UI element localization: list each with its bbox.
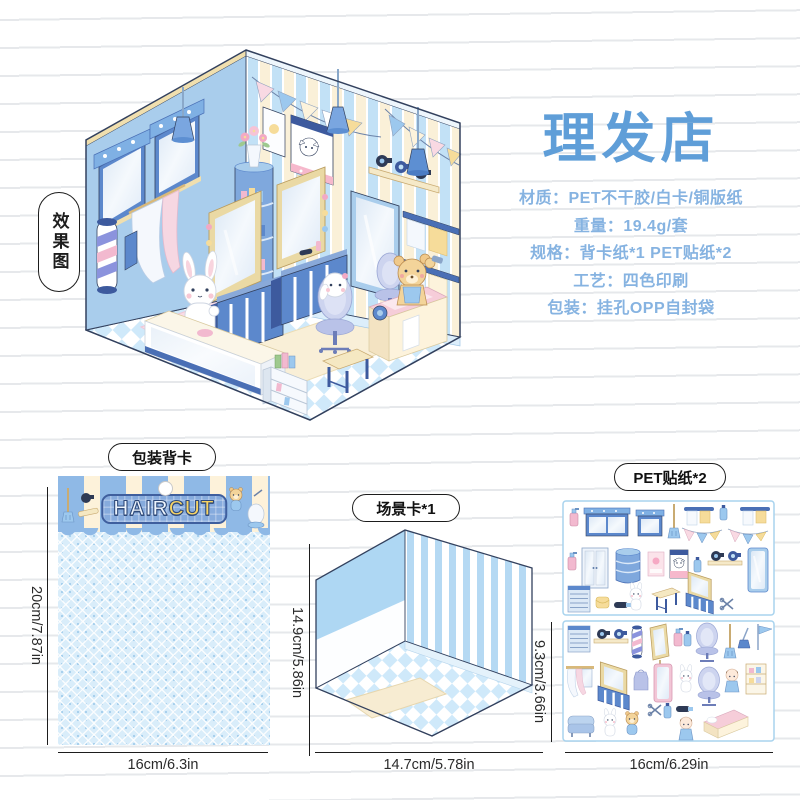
broom-tools-doodle (60, 486, 100, 528)
back-card-height-dim: 20cm/7.87in (28, 545, 44, 705)
back-card-pattern-body (58, 532, 270, 745)
back-card-header: HAIRCUT (58, 476, 270, 532)
scene-card-width-dim: 14.7cm/5.78in (359, 757, 499, 773)
effect-view-label: 效果图 (38, 192, 80, 292)
spec-material: 材质：PET不干胶/白卡/铜版纸 (498, 185, 764, 213)
sticker-apron (634, 670, 648, 690)
packaging-back-card: HAIRCUT (58, 476, 270, 745)
measure-line (551, 622, 552, 742)
spec-packaging: 包装：挂孔OPP自封袋 (498, 295, 764, 323)
scene-card-height-dim: 14.9cm/5.86in (289, 575, 305, 730)
sticker-glass-door (582, 548, 608, 588)
sticker-blinds-window (568, 586, 590, 612)
effect-view-label-text: 效果图 (47, 212, 72, 272)
measure-line (309, 544, 310, 756)
spec-contents: 规格：背卡纸*1 PET贴纸*2 (498, 240, 764, 268)
sticker-cabinet (746, 664, 766, 694)
salon-effect-illustration (85, 45, 505, 437)
bear-chair-doodle (226, 484, 268, 530)
product-specs: 材质：PET不干胶/白卡/铜版纸 重量：19.4g/套 规格：背卡纸*1 PET… (498, 185, 764, 323)
poster-icon (263, 107, 285, 157)
barber-pole-icon (97, 218, 117, 294)
sticker-pink-poster (648, 552, 664, 576)
sticker-small-window (636, 510, 664, 536)
spec-printing: 工艺：四色印刷 (498, 268, 764, 296)
product-detail-page: 效果图 理发店 材质：PET不干胶/白卡/铜版纸 重量：19.4g/套 规格：背… (0, 0, 800, 800)
scene-card-label: 场景卡*1 (352, 494, 460, 522)
sticker-bear-figure (626, 712, 639, 735)
product-info: 理发店 材质：PET不干胶/白卡/铜版纸 重量：19.4g/套 规格：背卡纸*1… (498, 110, 764, 323)
sticker-sheet-2 (562, 620, 775, 742)
sticker-sheets-label: PET贴纸*2 (614, 463, 726, 491)
sticker-barber-pole (632, 626, 642, 659)
measure-line (47, 487, 48, 745)
back-card-width-dim: 16cm/6.3in (93, 757, 233, 773)
back-card-label: 包装背卡 (108, 443, 216, 471)
scallop-edge (58, 528, 270, 537)
sticker-cat-poster (670, 550, 688, 578)
sticker-corner-shelf (616, 549, 640, 584)
spec-weight: 重量：19.4g/套 (498, 213, 764, 241)
measure-line (315, 752, 543, 753)
measure-line (58, 752, 268, 753)
product-title: 理发店 (498, 110, 764, 169)
measure-line (565, 752, 773, 753)
sticker-width-dim: 16cm/6.29in (599, 757, 739, 773)
sticker-sheet-1 (562, 500, 775, 616)
door-icon (125, 231, 137, 270)
sticker-height-dim: 9.3cm/3.66in (531, 622, 547, 742)
scene-card (312, 528, 545, 762)
sticker-wide-window (584, 508, 630, 536)
haircut-sign: HAIRCUT (101, 494, 227, 524)
sticker-pouch (596, 597, 609, 608)
hang-hole (158, 481, 173, 496)
sticker-pink-mirror (654, 664, 672, 702)
sticker-tall-mirror (748, 548, 768, 592)
sticker-blinds-window (568, 626, 590, 652)
